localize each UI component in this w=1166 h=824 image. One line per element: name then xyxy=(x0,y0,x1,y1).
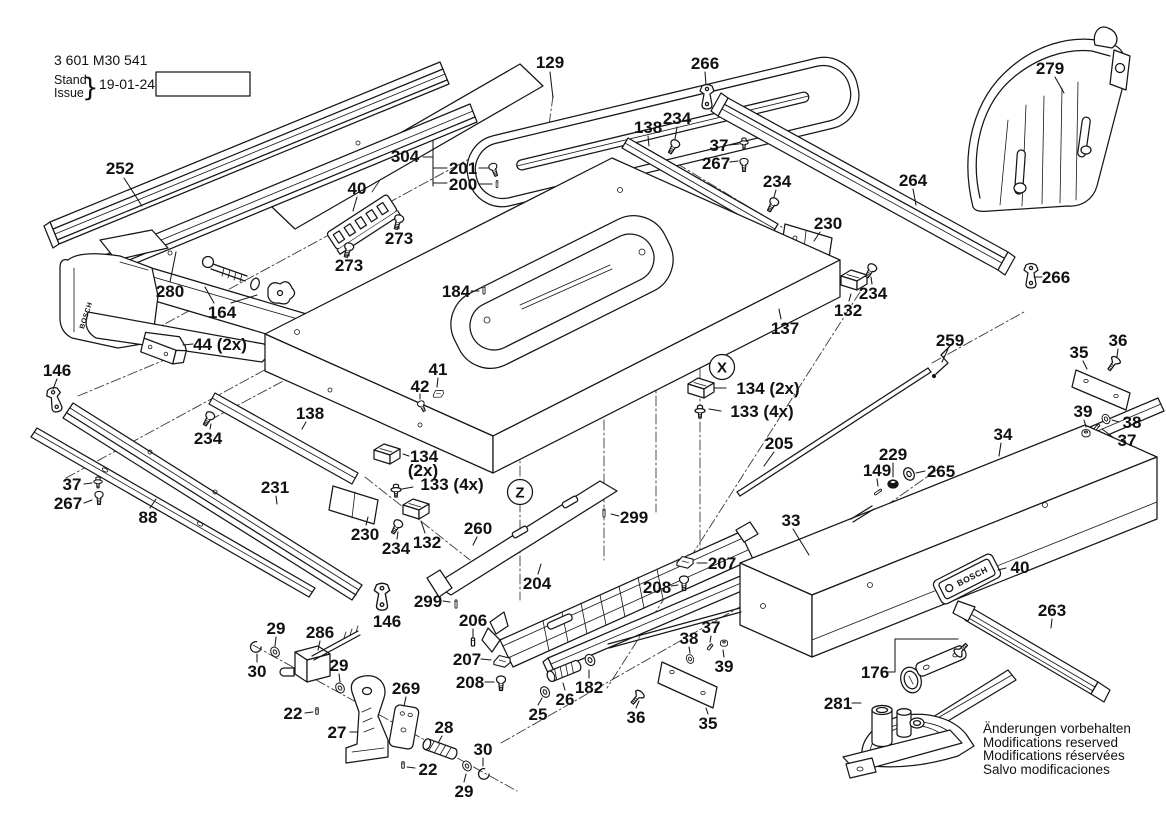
part-234-screw xyxy=(201,410,216,427)
part-133-screw xyxy=(695,405,705,418)
part-label-25: 25 xyxy=(529,705,548,724)
part-label-30: 30 xyxy=(474,740,493,759)
part-267-screw xyxy=(95,491,103,504)
leader-line-234 xyxy=(774,190,776,197)
part-label-286: 286 xyxy=(306,623,334,642)
issue-label: Issue xyxy=(54,86,84,100)
part-label-260: 260 xyxy=(464,519,492,538)
part-label-36: 36 xyxy=(1109,331,1128,350)
part-label-205: 205 xyxy=(765,434,793,453)
part-label-34: 34 xyxy=(994,425,1013,444)
leader-line-205 xyxy=(764,452,774,466)
part-230-plate-left xyxy=(329,486,378,524)
part-149-pin xyxy=(874,489,882,496)
leader-line-129 xyxy=(550,72,553,98)
part-label-265: 265 xyxy=(927,462,955,481)
part-267-screw xyxy=(740,158,748,171)
leader-line-36 xyxy=(1117,349,1118,357)
revision-notes: Änderungen vorbehalten Modifications res… xyxy=(983,721,1131,777)
part-265-washer xyxy=(902,466,917,482)
part-146-clamp xyxy=(374,583,389,610)
part-234-screw xyxy=(765,196,780,213)
document-number: 3 601 M30 541 xyxy=(54,52,148,68)
part-208-screw xyxy=(497,676,506,691)
part-label-273: 273 xyxy=(385,229,413,248)
part-29-washer xyxy=(334,681,346,694)
leader-line-28 xyxy=(438,736,442,743)
part-label-30: 30 xyxy=(248,662,267,681)
part-28-pin xyxy=(422,738,459,760)
part-label-138: 138 xyxy=(296,404,324,423)
part-label-138: 138 xyxy=(634,118,662,137)
leader-line-299 xyxy=(611,514,619,516)
part-207-clip xyxy=(494,656,510,668)
leader-line-231 xyxy=(276,496,277,504)
part-206-pin xyxy=(471,638,474,646)
part-label-176: 176 xyxy=(861,663,889,682)
part-label-204: 204 xyxy=(523,574,552,593)
leader-line-266 xyxy=(705,72,706,85)
leader-line-299 xyxy=(443,601,450,602)
part-22-grub-screw xyxy=(316,708,319,714)
part-label-266: 266 xyxy=(691,54,719,73)
part-label-184: 184 xyxy=(442,282,471,301)
part-label-263: 263 xyxy=(1038,601,1066,620)
part-39-nut xyxy=(721,640,728,646)
part-30-circlip xyxy=(477,767,491,781)
part-label-42: 42 xyxy=(411,377,430,396)
part-label-41: 41 xyxy=(429,360,448,379)
part-184-pin xyxy=(483,286,485,294)
part-37-pin xyxy=(707,644,713,651)
callout-letter-Z: Z xyxy=(515,485,524,502)
leader-line-260 xyxy=(473,537,477,545)
figure-label: Fig./Abb. 1 xyxy=(160,75,247,94)
leader-line-234 xyxy=(871,277,872,284)
part-25-washer xyxy=(539,685,552,699)
part-35-plate-bottom xyxy=(658,662,717,708)
part-137-table-top xyxy=(265,158,840,473)
part-label-38: 38 xyxy=(680,629,699,648)
part-label-38: 38 xyxy=(1123,413,1142,432)
part-label-1334x: 133 (4x) xyxy=(420,475,483,494)
part-label-269: 269 xyxy=(392,679,420,698)
part-label-299: 299 xyxy=(414,592,442,611)
part-label-1342x: 134 (2x) xyxy=(736,379,799,398)
part-label-37: 37 xyxy=(702,618,721,637)
part-label-264: 264 xyxy=(899,171,928,190)
part-138-rail-left xyxy=(209,393,358,484)
part-label-231: 231 xyxy=(261,478,289,497)
leader-line-149 xyxy=(877,479,878,486)
part-label-259: 259 xyxy=(936,331,964,350)
part-207-clip xyxy=(677,557,693,569)
issue-date: 19-01-24 xyxy=(99,76,155,92)
leader-line-36 xyxy=(636,701,639,708)
part-label-234: 234 xyxy=(763,172,792,191)
part-299-pin xyxy=(455,600,457,608)
part-134-bracket xyxy=(688,378,714,398)
leader-line-263 xyxy=(1051,619,1052,628)
part-266-clamp xyxy=(1024,264,1038,289)
leader-line-34 xyxy=(999,443,1001,456)
leader-line-134 xyxy=(403,454,409,456)
part-label-132: 132 xyxy=(834,301,862,320)
part-label-207: 207 xyxy=(708,554,736,573)
part-27-support-arm xyxy=(346,676,388,763)
part-30-circlip xyxy=(249,640,263,654)
part-label-207: 207 xyxy=(453,650,481,669)
part-label-36: 36 xyxy=(627,708,646,727)
part-label-40: 40 xyxy=(1011,558,1030,577)
part-label-88: 88 xyxy=(139,508,158,527)
part-36-screw xyxy=(628,689,645,707)
leader-line-35 xyxy=(1083,361,1087,369)
part-200-pin xyxy=(496,180,498,187)
guard-knob xyxy=(1094,27,1117,48)
part-label-35: 35 xyxy=(1070,343,1089,362)
leader-line-29 xyxy=(339,674,340,682)
part-label-279: 279 xyxy=(1036,59,1064,78)
part-label-146: 146 xyxy=(373,612,401,631)
part-229-nut xyxy=(888,480,898,488)
leader-line-22 xyxy=(305,712,313,713)
part-label-267: 267 xyxy=(54,494,82,513)
part-label-273: 273 xyxy=(335,256,363,275)
part-label-442x: 44 (2x) xyxy=(193,335,247,354)
parts-diagram-canvas: BOSCH xyxy=(0,0,1166,824)
part-label-230: 230 xyxy=(814,214,842,233)
leader-line-265 xyxy=(916,471,925,473)
part-label-33: 33 xyxy=(782,511,801,530)
part-34-beam xyxy=(740,425,1157,657)
part-label-137: 137 xyxy=(771,319,799,338)
part-263-push-stick-rail xyxy=(953,601,1110,702)
part-label-164: 164 xyxy=(208,303,237,322)
part-label-1334x: 133 (4x) xyxy=(730,402,793,421)
part-label-26: 26 xyxy=(556,690,575,709)
leader-line-29 xyxy=(464,774,466,782)
part-label-266: 266 xyxy=(1042,268,1070,287)
part-29-washer xyxy=(269,645,281,658)
brace-glyph: } xyxy=(82,73,99,103)
part-label-234: 234 xyxy=(382,539,411,558)
leader-line-267 xyxy=(730,161,738,162)
part-label-208: 208 xyxy=(456,673,484,692)
part-279-blade-guard xyxy=(968,27,1130,211)
leader-line-234 xyxy=(397,532,398,539)
part-label-281: 281 xyxy=(824,694,852,713)
part-label-206: 206 xyxy=(459,611,487,630)
part-label-230: 230 xyxy=(351,525,379,544)
part-133-screw xyxy=(391,484,401,497)
note-fr: Modifications réservées xyxy=(983,748,1125,763)
part-label-39: 39 xyxy=(1074,402,1093,421)
part-label-149: 149 xyxy=(863,461,891,480)
part-label-22: 22 xyxy=(419,760,438,779)
part-label-40: 40 xyxy=(348,179,367,198)
callout-letter-X: X xyxy=(717,360,727,377)
part-299-pin xyxy=(603,509,605,517)
leader-line-267 xyxy=(84,500,92,503)
leader-line-204 xyxy=(538,564,541,574)
part-label-28: 28 xyxy=(435,718,454,737)
part-label-29: 29 xyxy=(455,782,474,801)
part-label-37: 37 xyxy=(710,136,729,155)
part-label-234: 234 xyxy=(859,284,888,303)
part-label-35: 35 xyxy=(699,714,718,733)
part-label-29: 29 xyxy=(330,656,349,675)
part-label-37: 37 xyxy=(63,475,82,494)
leader-line-40 xyxy=(353,197,357,211)
part-label-29: 29 xyxy=(267,619,286,638)
part-146-clamp xyxy=(45,386,65,413)
part-label-132: 132 xyxy=(413,533,441,552)
title-block: 3 601 M30 541 Stand Issue } 19-01-24 Fig… xyxy=(54,52,250,103)
part-269-plate xyxy=(389,704,420,750)
part-22-grub-screw xyxy=(402,762,405,768)
part-label-200: 200 xyxy=(449,175,477,194)
part-label-234: 234 xyxy=(663,109,692,128)
part-234-screw xyxy=(389,518,404,535)
part-label-280: 280 xyxy=(156,282,184,301)
part-176-lock-assembly xyxy=(888,639,970,695)
part-label-129: 129 xyxy=(536,53,564,72)
part-label-22: 22 xyxy=(284,704,303,723)
part-label-208: 208 xyxy=(643,578,671,597)
leader-line-132 xyxy=(849,294,851,301)
leader-line-29 xyxy=(275,637,276,646)
leader-line-37 xyxy=(84,483,92,484)
part-234-screw xyxy=(863,262,878,279)
leader-line-1334x xyxy=(402,487,413,489)
part-label-252: 252 xyxy=(106,159,134,178)
leader-line-269 xyxy=(404,697,406,706)
part-label-182: 182 xyxy=(575,678,603,697)
part-label-37: 37 xyxy=(1118,431,1137,450)
part-134-bracket xyxy=(374,444,400,464)
part-36-screw xyxy=(1105,355,1122,373)
part-label-304: 304 xyxy=(391,147,420,166)
part-label-299: 299 xyxy=(620,508,648,527)
leader-line-26 xyxy=(563,683,565,690)
leader-line-1334x xyxy=(709,409,721,411)
part-label-39: 39 xyxy=(715,657,734,676)
part-label-234: 234 xyxy=(194,429,223,448)
part-label-267: 267 xyxy=(702,154,730,173)
leader-line-25 xyxy=(538,698,542,705)
part-37-pin xyxy=(94,477,103,488)
part-132-bracket xyxy=(403,499,429,519)
leader-line-22 xyxy=(407,767,415,768)
part-39-nut xyxy=(1082,430,1090,437)
leader-line-138 xyxy=(302,422,306,429)
part-label-27: 27 xyxy=(328,723,347,742)
leader-line-207 xyxy=(481,659,491,660)
note-de: Änderungen vorbehalten xyxy=(983,721,1131,736)
leader-line-39 xyxy=(723,650,724,657)
part-38-washer xyxy=(685,653,695,664)
part-label-146: 146 xyxy=(43,361,71,380)
note-es: Salvo modificaciones xyxy=(983,762,1110,777)
exploded-parts-diagram-page: BOSCH xyxy=(0,0,1166,824)
